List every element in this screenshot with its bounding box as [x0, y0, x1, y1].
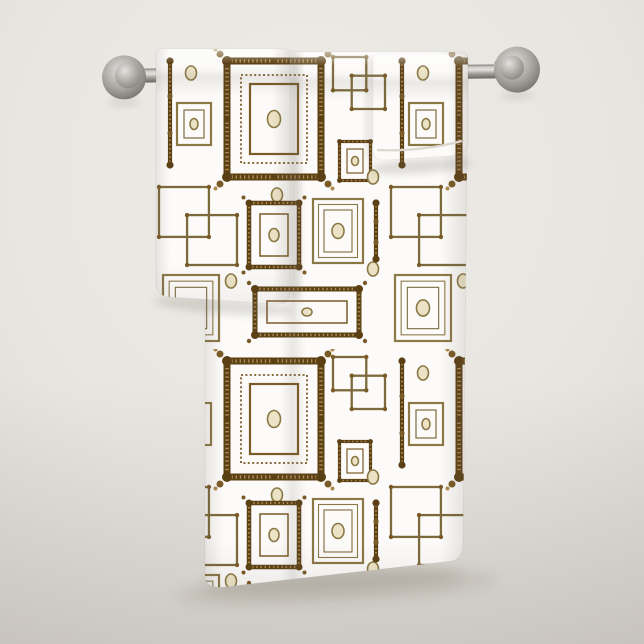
product-photo	[0, 0, 644, 644]
hand-towel-edge-shadow	[290, 56, 299, 300]
washcloth	[373, 54, 468, 164]
right-fold-shade	[448, 54, 468, 164]
bath-towel-set-scene	[0, 0, 644, 644]
hand-towel	[156, 49, 290, 305]
fold-shade	[156, 49, 290, 97]
